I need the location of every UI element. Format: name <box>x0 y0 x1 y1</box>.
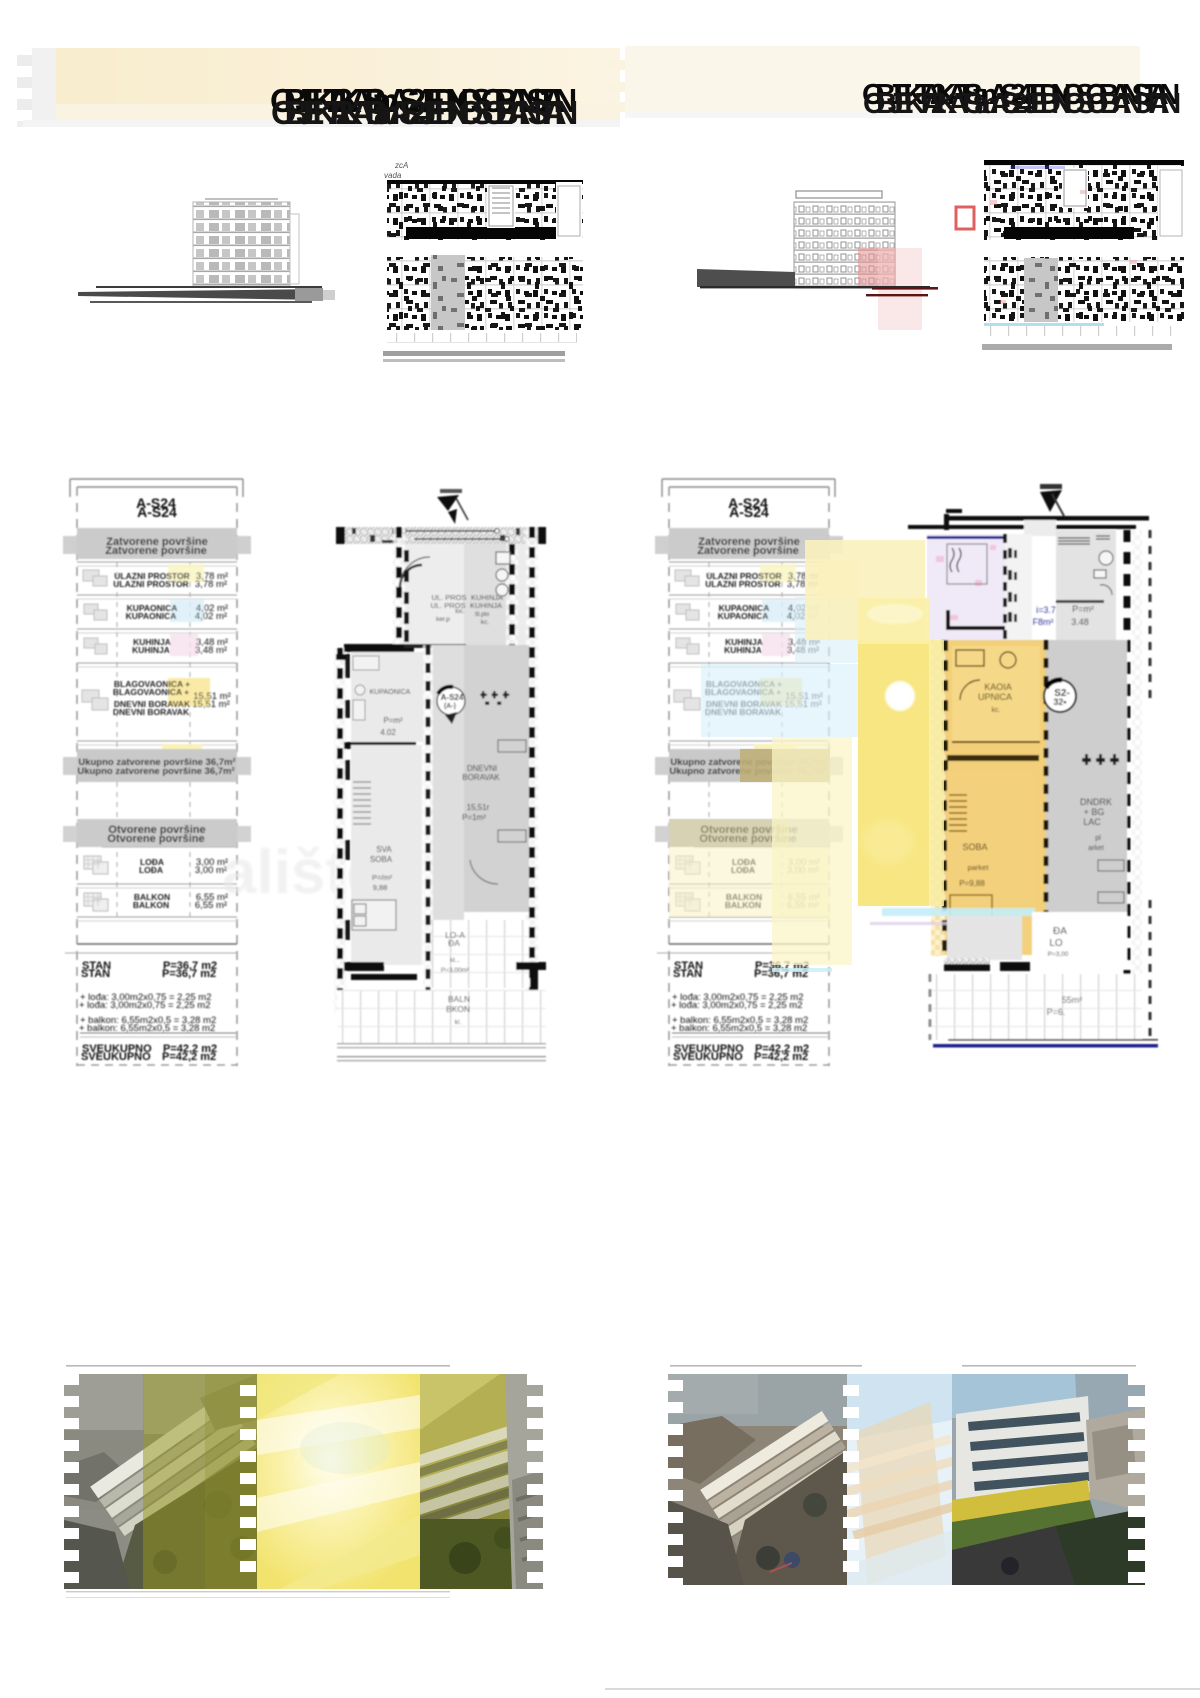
svg-text:KAOIA: KAOIA <box>984 682 1012 692</box>
svg-text:LOĐA: LOĐA <box>139 865 163 875</box>
svg-text:kc.: kc. <box>481 619 490 626</box>
svg-text:kl.: kl. <box>455 1019 462 1026</box>
svg-text:kl...: kl... <box>450 957 460 964</box>
svg-text:4,02 m²: 4,02 m² <box>195 611 227 622</box>
svg-text:kc.: kc. <box>992 707 1001 714</box>
svg-text:DNEVNI: DNEVNI <box>467 764 497 773</box>
svg-text:ULAZNI PROSTOR: ULAZNI PROSTOR <box>113 579 188 589</box>
svg-text:zcA: zcA <box>394 161 408 170</box>
svg-text:P=3,00: P=3,00 <box>1048 951 1069 958</box>
svg-text:STAN: STAN <box>81 968 110 980</box>
svg-text:Ukupno zatvorene površine 36,7: Ukupno zatvorene površine 36,7m² <box>77 766 234 777</box>
svg-text:15,51r: 15,51r <box>467 803 490 812</box>
svg-text:4.02: 4.02 <box>380 728 396 737</box>
svg-text:Otvorene površine: Otvorene površine <box>107 833 204 845</box>
svg-text:DNDRK: DNDRK <box>1080 797 1112 807</box>
svg-text:15,51 m²: 15,51 m² <box>192 699 230 710</box>
svg-text:BLAGOVAONICA +: BLAGOVAONICA + <box>113 687 189 697</box>
svg-text:P=6.: P=6. <box>1047 1007 1066 1017</box>
svg-text:BKON: BKON <box>446 1004 470 1014</box>
svg-text:UPNICA: UPNICA <box>978 692 1012 702</box>
svg-text:P=42,2 m2: P=42,2 m2 <box>162 1051 216 1063</box>
svg-text:9,88: 9,88 <box>373 883 388 892</box>
svg-text:KUHINJA: KUHINJA <box>132 645 170 655</box>
svg-text:Zatvorene površine: Zatvorene površine <box>105 545 206 557</box>
svg-text:loc.: loc. <box>455 609 465 615</box>
svg-text:A-S24: A-S24 <box>137 504 177 520</box>
svg-text:BORAVAK: BORAVAK <box>462 773 500 782</box>
svg-text:P=36,7 m2: P=36,7 m2 <box>162 968 216 980</box>
svg-text:ĐA: ĐA <box>448 938 460 948</box>
svg-text:SVA: SVA <box>376 845 392 854</box>
svg-text:F8m²: F8m² <box>1033 617 1054 627</box>
svg-text:+ BG: + BG <box>1084 807 1105 817</box>
svg-text:KUHINJA: KUHINJA <box>470 601 502 610</box>
svg-text:KUPAONICA: KUPAONICA <box>126 611 177 621</box>
svg-text:BALKON: BALKON <box>133 900 169 910</box>
svg-text:+ lođa: 3,00m2x0,75 = 2,25 m2: + lođa: 3,00m2x0,75 = 2,25 m2 <box>79 1000 211 1011</box>
svg-text:ker.p: ker.p <box>436 616 450 623</box>
svg-text:pl: pl <box>1095 835 1101 842</box>
svg-text:P=m²: P=m² <box>383 716 403 725</box>
svg-text:P=3,00m²: P=3,00m² <box>441 967 470 974</box>
svg-text:št.plo: št.plo <box>475 612 490 618</box>
svg-text:KUPAONICA: KUPAONICA <box>370 689 411 696</box>
svg-text:OBJEKT A 2.KAT StanA-S24 JEDNO: OBJEKT A 2.KAT StanA-S24 JEDNOSOBAN STAN <box>271 94 577 131</box>
svg-text:arket: arket <box>1088 845 1104 852</box>
svg-text:SVEUKUPNO: SVEUKUPNO <box>81 1051 151 1063</box>
svg-text:P=9,88: P=9,88 <box>959 879 985 888</box>
svg-text:LAC: LAC <box>1083 817 1101 827</box>
svg-text:+ balkon: 6,55m2x0,5 = 3,28 m2: + balkon: 6,55m2x0,5 = 3,28 m2 <box>79 1023 215 1034</box>
svg-text:32•: 32• <box>1053 697 1066 707</box>
svg-text:parket: parket <box>968 863 990 872</box>
svg-text:3.48: 3.48 <box>1071 617 1089 627</box>
svg-text:P=1m²: P=1m² <box>462 813 486 822</box>
svg-text:P=/m²: P=/m² <box>372 873 393 882</box>
svg-text:A-S24: A-S24 <box>441 693 464 702</box>
svg-text:DNEVNI BORAVAK: DNEVNI BORAVAK <box>113 707 190 717</box>
svg-text:LO: LO <box>1049 938 1063 949</box>
svg-text:(A-): (A-) <box>444 703 456 710</box>
svg-text:SOBA: SOBA <box>370 855 393 864</box>
svg-text:vada: vada <box>384 171 402 180</box>
svg-text:OBJEKT A 2.KAT StanA-S24 JEDNO: OBJEKT A 2.KAT StanA-S24 JEDNOSOBAN STAN <box>863 88 1179 120</box>
svg-text:ĐA: ĐA <box>1053 926 1067 937</box>
svg-text:55m²: 55m² <box>1062 995 1083 1005</box>
svg-text:3,48 m²: 3,48 m² <box>195 645 227 656</box>
svg-text:BALN: BALN <box>448 994 470 1004</box>
svg-text:3,78 m²: 3,78 m² <box>195 579 227 590</box>
svg-text:SOBA: SOBA <box>962 842 987 852</box>
svg-text:i=3.7: i=3.7 <box>1036 605 1056 615</box>
svg-text:P=m²: P=m² <box>1072 604 1094 614</box>
